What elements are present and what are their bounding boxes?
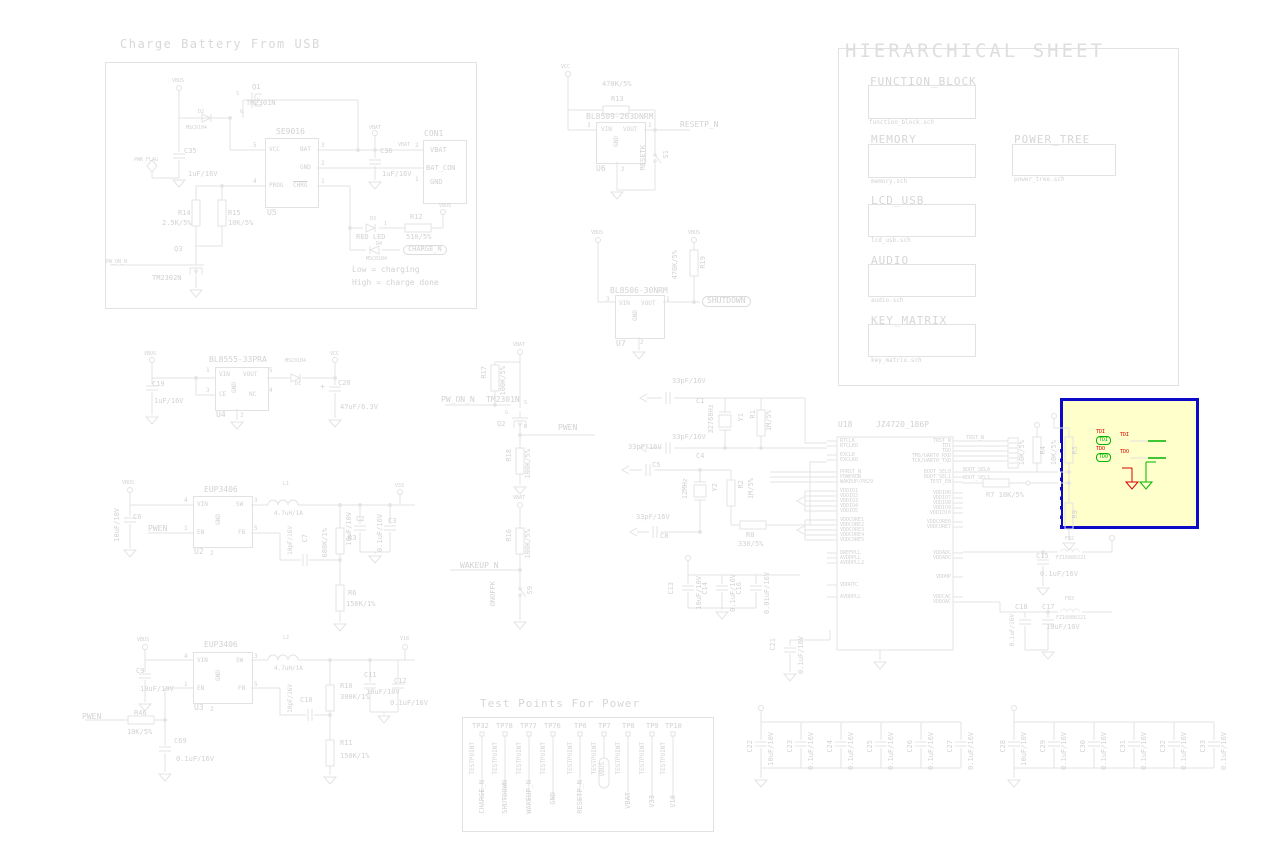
net-label: PWR_FLAG bbox=[134, 158, 158, 163]
pin-number: 3 bbox=[206, 388, 210, 394]
pin-label: FB bbox=[238, 530, 245, 536]
value-label: MSC0104 bbox=[285, 359, 306, 364]
value-label: EUP3406 bbox=[204, 486, 238, 494]
pin-number: 4 bbox=[253, 179, 257, 185]
net-label: PWEN bbox=[558, 424, 577, 432]
ref-label: C19 bbox=[152, 381, 165, 388]
value-label: TM2301N bbox=[486, 396, 520, 404]
edit-net-label: TDO bbox=[1120, 450, 1129, 455]
pin-number: 4 bbox=[269, 388, 273, 394]
ref-label: R46 bbox=[134, 710, 147, 717]
net-label: BOOT_SEL0 bbox=[963, 468, 990, 473]
ref-label: FB3 bbox=[1065, 597, 1074, 602]
ref-label: C8 bbox=[660, 533, 668, 540]
ref-label: C3 bbox=[388, 518, 396, 525]
ref-label: C21 bbox=[770, 638, 777, 651]
value-label: BL8506-30NRM bbox=[610, 287, 668, 295]
power-label: VCC bbox=[561, 65, 570, 70]
ref-label: TP78 bbox=[496, 723, 513, 730]
ref-label: C23 bbox=[787, 740, 794, 753]
ref-label: C9 bbox=[136, 668, 144, 675]
ref-label: C10 bbox=[300, 697, 313, 704]
edit-port-label: TDI bbox=[1096, 436, 1111, 445]
ref-label: C11 bbox=[364, 672, 377, 679]
ref-label: C32 bbox=[1160, 740, 1167, 753]
value-label: 0.1uF/16V bbox=[1061, 732, 1068, 770]
value-label: 100K/5% bbox=[525, 529, 532, 559]
ref-label: C28 bbox=[1000, 740, 1007, 753]
net-label: RESETP_N bbox=[680, 121, 719, 129]
sheet-box-audio[interactable] bbox=[868, 264, 976, 297]
pin-number: 2 bbox=[210, 551, 214, 557]
ref-label: C15 bbox=[1036, 553, 1049, 560]
pin-label: NC bbox=[249, 392, 256, 398]
ref-label: Q1 bbox=[252, 84, 260, 91]
ref-label: C6 bbox=[133, 514, 141, 521]
value-label: 100K/5% bbox=[525, 449, 532, 479]
value-label: 0.1uF/16V bbox=[968, 732, 975, 770]
value-label: 1uF/16V bbox=[154, 398, 184, 405]
ref-label: R16 bbox=[506, 529, 513, 542]
net-label: VBAT bbox=[398, 143, 410, 148]
ref-label: C33 bbox=[1200, 740, 1207, 753]
net-label: PWEN bbox=[148, 525, 167, 533]
value-label: 470K/5% bbox=[672, 250, 679, 280]
sheet-file: audio.sch bbox=[871, 298, 904, 304]
pin-label: VIN bbox=[219, 372, 230, 378]
value-label: 150K/1% bbox=[346, 601, 376, 608]
power-label: VCC bbox=[330, 352, 339, 357]
net-flag: SHUTDOWN bbox=[702, 296, 751, 307]
sheet-box-key-matrix[interactable] bbox=[868, 324, 976, 357]
ref-label: D2 bbox=[198, 110, 204, 115]
pin-number: 5 bbox=[254, 526, 258, 532]
ref-label: C26 bbox=[907, 740, 914, 753]
value-label: MSC0104 bbox=[366, 257, 387, 262]
net-label: PW_ON_N bbox=[106, 260, 127, 265]
pin-number: 1 bbox=[184, 682, 188, 688]
pin-label: VOUT bbox=[623, 127, 637, 133]
value-label: 0.1uF/16V bbox=[176, 756, 214, 763]
net-label: BOOT_SEL1 bbox=[963, 476, 990, 481]
pin-label: SW bbox=[236, 502, 243, 508]
pin-label: VOUT bbox=[243, 372, 257, 378]
note-text: High = charge done bbox=[352, 279, 439, 287]
pin-label: AVDDPLL bbox=[840, 595, 861, 600]
value-label: FZ16080221 bbox=[1056, 616, 1086, 621]
schematic-page: { "power_nets": {"vbus":"VBUS","vcc":"VC… bbox=[0, 0, 1280, 850]
value-label: TM2302N bbox=[152, 275, 182, 282]
edit-net-label: TDI bbox=[1096, 430, 1105, 435]
pin-number: 1 bbox=[415, 177, 419, 183]
ref-label: U2 bbox=[194, 548, 204, 556]
value-label: MSC0104 bbox=[186, 126, 207, 131]
ref-label: R2 bbox=[738, 480, 745, 488]
pin-number: 3 bbox=[606, 297, 610, 303]
pin-number: 4 bbox=[184, 654, 188, 660]
pin-label: BAT_CON bbox=[426, 165, 456, 172]
ref-label: U18 bbox=[838, 421, 852, 429]
net-flag: CHARGE_N bbox=[403, 245, 447, 255]
value-label: 32768Hz bbox=[708, 404, 715, 434]
value-label: 10uF/10V bbox=[346, 512, 353, 546]
pin-label: S bbox=[524, 401, 527, 406]
ref-label: TP7 bbox=[598, 723, 611, 730]
sheet-file: function_block.sch bbox=[869, 120, 934, 126]
power-label: VBUS bbox=[172, 79, 184, 84]
hier-title: HIERARCHICAL SHEET bbox=[845, 42, 1105, 61]
net-label: PWEN bbox=[82, 713, 101, 721]
testpoint-type: TESTPOINT bbox=[568, 742, 574, 775]
ref-label: TP9 bbox=[646, 723, 659, 730]
net-label: WAKEUP_N bbox=[460, 562, 499, 570]
pin-number: 5 bbox=[254, 682, 258, 688]
ref-label: Y1 bbox=[738, 413, 745, 421]
pin-label: AVDDPLL2 bbox=[840, 561, 864, 566]
net-label: PW_ON_N bbox=[441, 396, 475, 404]
pin-label: WAKEUP/PB29 bbox=[840, 480, 873, 485]
ref-label: C22 bbox=[747, 740, 754, 753]
value-label: 10K/5% bbox=[1019, 440, 1026, 465]
ref-label: C27 bbox=[947, 740, 954, 753]
ref-label: R4 bbox=[1040, 446, 1047, 454]
value-label: 33pF/16V bbox=[672, 378, 706, 385]
ref-label: C1 bbox=[696, 398, 704, 405]
value-label: 33pF/16V bbox=[628, 444, 662, 451]
pin-label: TEST_EN bbox=[906, 480, 951, 485]
pin-label: RTCLKO bbox=[840, 444, 858, 449]
sheet-file: key_matrix.sch bbox=[871, 358, 922, 364]
sheet-box-function-block[interactable] bbox=[868, 85, 976, 119]
pin-number: 1 bbox=[321, 179, 325, 185]
ref-label: R5 bbox=[1072, 446, 1079, 454]
value-label: 0.1uF/16V bbox=[798, 636, 805, 674]
ref-label: C17 bbox=[1042, 604, 1055, 611]
pin-label: EN bbox=[197, 686, 204, 692]
pin-number: 3 bbox=[254, 654, 258, 660]
pin-number: 2 bbox=[415, 143, 419, 149]
selection-marquee-dashes bbox=[1058, 443, 1061, 525]
net-label: V18 bbox=[670, 795, 677, 808]
ref-label: C36 bbox=[380, 148, 393, 155]
ref-label: C12 bbox=[394, 678, 407, 685]
pin-number: 3 bbox=[587, 123, 591, 129]
ref-label: C4 bbox=[696, 453, 704, 460]
power-label: VBAT bbox=[513, 343, 525, 348]
pin-label: CHRG bbox=[293, 183, 307, 189]
testpoint-type: TESTPOINT bbox=[616, 742, 622, 775]
pin-number: 2 bbox=[321, 161, 325, 167]
net-label: VBAT bbox=[625, 792, 632, 809]
value-label: 33pF/16V bbox=[672, 434, 706, 441]
ref-label: CON1 bbox=[424, 130, 443, 138]
value-label: RESETK bbox=[640, 145, 647, 170]
value-label: 2.5K/5% bbox=[162, 220, 192, 227]
value-label: 0.1uF/16V bbox=[390, 700, 428, 707]
value-label: 0.1uF/16V bbox=[1040, 571, 1078, 578]
ref-label: TP8 bbox=[622, 723, 635, 730]
charge-block-title: Charge Battery From USB bbox=[120, 38, 321, 50]
ref-label: C13 bbox=[668, 582, 675, 595]
value-label: EUP3406 bbox=[204, 641, 238, 649]
ref-label: C29 bbox=[1040, 740, 1047, 753]
value-label: 47uF/6.3V bbox=[340, 404, 378, 411]
pin-label: EN bbox=[197, 530, 204, 536]
pin-label: GND bbox=[216, 670, 222, 681]
value-label: 0.1uF/16V bbox=[377, 514, 384, 552]
value-label: 150K/1% bbox=[340, 753, 370, 760]
ref-label: FB2 bbox=[1065, 537, 1074, 542]
pin-label: BAT bbox=[300, 147, 311, 153]
value-label: 0.1uF/16V bbox=[808, 732, 815, 770]
pin-label: VBAT bbox=[430, 147, 447, 154]
ref-label: C31 bbox=[1120, 740, 1127, 753]
pin-label: VDDCORE7 bbox=[906, 525, 951, 530]
testpoint-type: TESTPOINT bbox=[541, 742, 547, 775]
value-label: 0.1uF/16V bbox=[888, 732, 895, 770]
ref-label: C35 bbox=[184, 148, 197, 155]
ref-label: R11 bbox=[340, 740, 353, 747]
value-label: 10K/5% bbox=[228, 220, 253, 227]
value-label: 1uF/16V bbox=[382, 171, 412, 178]
ref-label: R18 bbox=[506, 449, 513, 462]
value-label: 0.1uF/16V bbox=[1181, 732, 1188, 770]
pin-label: VDDOAC bbox=[906, 600, 951, 605]
value-label: 330/5% bbox=[738, 541, 763, 548]
ref-label: U3 bbox=[194, 704, 204, 712]
pin-label: SW bbox=[236, 658, 243, 664]
pin-label: FB bbox=[238, 686, 245, 692]
pin-number: 5 bbox=[253, 143, 257, 149]
ref-label: U6 bbox=[596, 165, 606, 173]
ref-label: C30 bbox=[1080, 740, 1087, 753]
pin-label: VDDCORE5 bbox=[840, 538, 864, 543]
pin-number: 4 bbox=[184, 498, 188, 504]
value-label: SE9016 bbox=[276, 128, 305, 136]
ref-label: R9 bbox=[1072, 510, 1079, 518]
value-label: FZ16080221 bbox=[1056, 556, 1086, 561]
value-label: 10uF/10V bbox=[1021, 732, 1028, 766]
pin-label: GND bbox=[232, 382, 238, 393]
ref-label: U5 bbox=[267, 209, 277, 217]
pin-number: 1 bbox=[206, 368, 210, 374]
ref-label: R8 bbox=[746, 532, 754, 539]
testpoint-type: TESTPOINT bbox=[592, 742, 598, 775]
power-label: VBUS bbox=[144, 352, 156, 357]
power-label: V18 bbox=[400, 637, 409, 642]
value-label: TM2301N bbox=[246, 100, 276, 107]
pin-label: GND bbox=[300, 165, 311, 171]
ref-label: S1 bbox=[663, 150, 670, 158]
ref-label: R17 bbox=[481, 366, 488, 379]
pin-label: VOUT bbox=[641, 301, 655, 307]
ref-label: R12 bbox=[410, 214, 423, 221]
pin-label: VIN bbox=[619, 301, 630, 307]
testpoint-type: TESTPOINT bbox=[517, 742, 523, 775]
value-label: 10uF/10V bbox=[140, 686, 174, 693]
pin-label: G bbox=[240, 110, 243, 115]
pin-label: GND bbox=[633, 310, 639, 321]
ref-label: Q2 bbox=[497, 421, 505, 428]
value-label: 10pF/16V bbox=[288, 684, 294, 713]
pin-number: 1 bbox=[666, 297, 670, 303]
value-label: 0.01uF/16V bbox=[764, 572, 771, 614]
value-label: 4.7uH/1A bbox=[274, 666, 303, 672]
value-label: 0.1uF/16V bbox=[1221, 732, 1228, 770]
power-label: V33 bbox=[395, 484, 404, 489]
sheet-file: memory.sch bbox=[871, 179, 907, 185]
ref-label: TP77 bbox=[520, 723, 537, 730]
ref-label: R6 bbox=[348, 590, 356, 597]
edit-net-label: TDO bbox=[1096, 447, 1105, 452]
ref-label: C5 bbox=[652, 462, 660, 469]
pin-number: 3 bbox=[321, 143, 325, 149]
ref-label: D3 bbox=[370, 217, 376, 222]
ref-label: C18 bbox=[1015, 604, 1028, 611]
testpoints-title: Test Points For Power bbox=[480, 698, 640, 709]
sheet-box-lcd-usb[interactable] bbox=[868, 204, 976, 237]
ref-label: C14 bbox=[702, 582, 709, 595]
net-label: SHUTDOWN bbox=[502, 780, 509, 814]
pin-label: G bbox=[505, 411, 508, 416]
value-label: 10uF/10V bbox=[114, 508, 121, 542]
edit-port-label: TDO bbox=[1096, 453, 1111, 462]
pin-label: VDDRTC bbox=[840, 583, 858, 588]
value-label: 10uF/10V bbox=[1046, 624, 1080, 631]
ref-label: TP10 bbox=[665, 723, 682, 730]
ref-label: R15 bbox=[228, 210, 241, 217]
value-label: 0.1uF/16V bbox=[1101, 732, 1108, 770]
sheet-box-power-tree[interactable] bbox=[1012, 144, 1116, 176]
ref-label: C2 bbox=[356, 516, 364, 523]
pin-label: PROG bbox=[269, 183, 283, 189]
polarity-mark: + bbox=[320, 383, 325, 391]
value-label: 0.1uF/16V bbox=[1141, 732, 1148, 770]
value-label: 10uF/10V bbox=[768, 732, 775, 766]
value-label: 0.1uF/16V bbox=[1010, 614, 1016, 647]
net-label: GND bbox=[550, 792, 557, 805]
ref-label: Y2 bbox=[712, 483, 719, 491]
ref-label: D1 bbox=[295, 382, 301, 387]
pin-label: VDDHP bbox=[906, 575, 951, 580]
ref-label: Q3 bbox=[174, 246, 182, 253]
net-label: TRST_N bbox=[966, 436, 984, 441]
net-label: CHARGE_N bbox=[479, 780, 486, 814]
value-label: 510/5% bbox=[406, 234, 431, 241]
pin-label: S bbox=[236, 92, 239, 97]
power-label: VBUS bbox=[122, 481, 134, 486]
ref-label: L1 bbox=[283, 482, 289, 487]
ref-label: R14 bbox=[178, 210, 191, 217]
value-label: ONOFFK bbox=[490, 581, 497, 606]
value-label: 10uF/10V bbox=[366, 689, 400, 696]
pin-label: GND bbox=[430, 179, 443, 186]
pin-number: 1 bbox=[648, 123, 652, 129]
ref-label: C25 bbox=[867, 740, 874, 753]
power-label: VBUS bbox=[591, 231, 603, 236]
value-label: BL8509-263DNRM bbox=[586, 113, 653, 121]
edit-net-label: TDI bbox=[1120, 433, 1129, 438]
ref-label: R13 bbox=[611, 96, 624, 103]
ref-label: U4 bbox=[216, 411, 226, 419]
ref-label: TP76 bbox=[544, 723, 561, 730]
testpoint-type: TESTPOINT bbox=[640, 742, 646, 775]
sheet-file: lcd_usb.sch bbox=[871, 238, 911, 244]
pin-label: VDDADC bbox=[906, 556, 951, 561]
pin-number: 2 bbox=[640, 340, 644, 346]
value-label: 10K/5% bbox=[127, 729, 152, 736]
pin-label: D bbox=[524, 425, 527, 430]
value-label: 680K/1% bbox=[322, 528, 329, 558]
pin-number: 1 bbox=[184, 526, 188, 532]
power-label: VBUS bbox=[137, 638, 149, 643]
pin-label: VIN bbox=[197, 658, 208, 664]
sheet-box-memory[interactable] bbox=[868, 144, 976, 178]
pin-label: VIN bbox=[197, 502, 208, 508]
ref-label: C7 bbox=[302, 534, 309, 542]
value-label: 470K/5% bbox=[602, 81, 632, 88]
testpoint-type: TESTPOINT bbox=[493, 742, 499, 775]
pin-label: TCK/UART0_TXD bbox=[906, 459, 951, 464]
value-label: 0.1uF/16V bbox=[928, 732, 935, 770]
pin-label: CE bbox=[219, 392, 226, 398]
value-label: JZ4720_186P bbox=[876, 421, 929, 429]
ref-label: S9 bbox=[527, 586, 534, 594]
note-text: Low = charging bbox=[352, 266, 419, 274]
power-label: VBAT bbox=[369, 126, 381, 131]
pin-number: 3 bbox=[254, 498, 258, 504]
pin-number: 2 bbox=[210, 707, 214, 713]
pin-label: GND bbox=[614, 136, 620, 147]
testpoint-type: TESTPOINT bbox=[470, 742, 476, 775]
net-label: RESETP_N bbox=[577, 780, 584, 814]
value-label: 10K/5% bbox=[1051, 440, 1058, 465]
pin-number: 1 bbox=[384, 222, 387, 227]
ref-label: R1 bbox=[750, 410, 757, 418]
ref-label: L2 bbox=[283, 636, 289, 641]
value-label: 12MHz bbox=[682, 478, 689, 499]
pin-label: GND bbox=[216, 514, 222, 525]
value-label: 1M/5% bbox=[766, 410, 773, 431]
value-label: 33pF/16V bbox=[636, 514, 670, 521]
net-label: WAKEUP_N bbox=[526, 780, 533, 814]
ref-label: D4 bbox=[376, 242, 382, 247]
value-label: 10pF/16V bbox=[288, 526, 294, 555]
pin-number: 2 bbox=[621, 167, 625, 173]
value-label: 4.7uH/1A bbox=[274, 511, 303, 517]
ref-label: R10 bbox=[340, 683, 353, 690]
value-label: 100K/5% bbox=[500, 366, 507, 396]
buck1-wires bbox=[124, 488, 415, 632]
ref-label: TP32 bbox=[472, 723, 489, 730]
net-label: V33 bbox=[649, 795, 656, 808]
ref-label: C24 bbox=[827, 740, 834, 753]
pin-label: VDDIO10 bbox=[906, 511, 951, 516]
value-label: 0.1uF/16V bbox=[848, 732, 855, 770]
power-label: VBUS bbox=[439, 204, 451, 209]
net-label: VBUS bbox=[600, 762, 606, 776]
testpoints-border bbox=[462, 717, 714, 832]
ref-label: C20 bbox=[338, 380, 351, 387]
value-label: BL8555-33PRA bbox=[209, 356, 267, 364]
pin-label: VDDIO5 bbox=[840, 509, 858, 514]
pin-label: VCC bbox=[269, 147, 280, 153]
power-label: VBUS bbox=[688, 231, 700, 236]
pin-number: 5 bbox=[269, 368, 273, 374]
sheet-file: power_tree.sch bbox=[1014, 177, 1065, 183]
ref-label: R19 bbox=[700, 256, 707, 269]
testpoint-type: TESTPOINT bbox=[661, 742, 667, 775]
